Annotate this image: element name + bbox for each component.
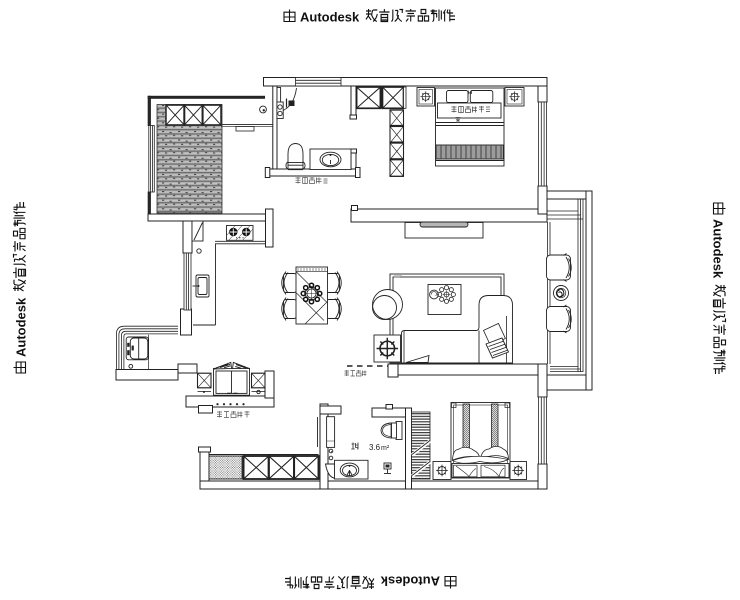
svg-text:m²: m² [381,445,390,452]
svg-text:3.6: 3.6 [369,443,381,452]
